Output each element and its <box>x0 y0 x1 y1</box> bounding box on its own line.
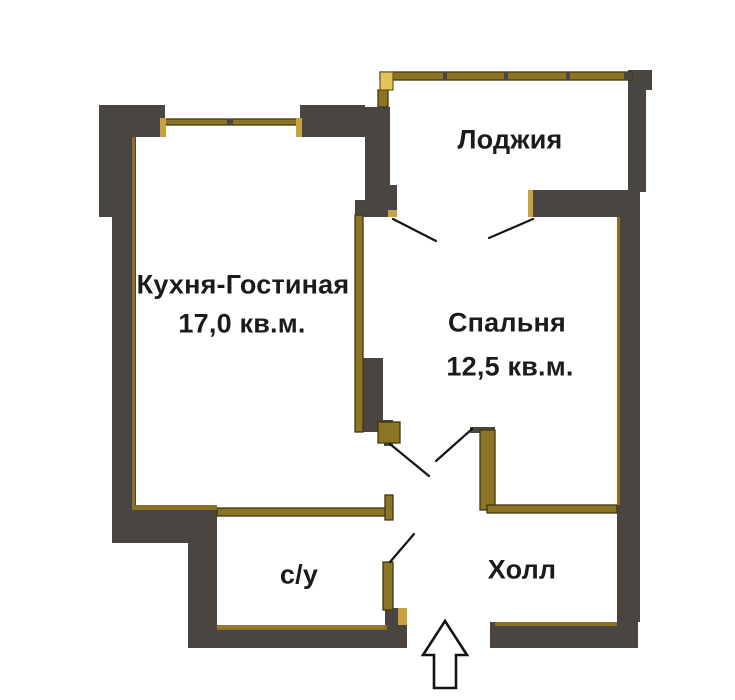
jamb-kitchen-window-left <box>160 118 166 137</box>
jamb-bathroom-step <box>398 608 407 625</box>
kitchen-window-tick <box>227 119 233 125</box>
floor-plan: Лоджия Кухня-Гостиная 17,0 кв.м. Спальня… <box>0 0 735 700</box>
loggia-left-window-strip <box>378 90 388 107</box>
bathroom-door-leaf <box>390 534 414 562</box>
trim-right-wall-inner <box>617 217 620 505</box>
wall-bathroom-bottom <box>192 628 407 648</box>
trim-bathroom-bottom-top <box>217 625 387 630</box>
balcony-door-leaf-left <box>393 219 436 241</box>
loggia-window-tick <box>624 72 632 80</box>
trim-kitchen-block-top <box>132 505 217 510</box>
wall-bathroom-top <box>217 508 387 516</box>
wall-kitchen-bottom-block <box>112 505 217 543</box>
jamb-kitchen-window-right <box>296 118 302 137</box>
loggia-window-tick <box>566 72 570 80</box>
balcony-door-leaf-right <box>489 219 533 238</box>
wall-partition-jamb <box>378 422 400 443</box>
wall-right-outer <box>617 192 640 622</box>
loggia-window-tick <box>443 72 447 80</box>
kitchen-door-leaf <box>390 444 429 476</box>
loggia-window-corner-block <box>380 72 393 90</box>
room-label-kitchen-living: Кухня-Гостиная <box>137 270 350 301</box>
room-area-kitchen-living: 17,0 кв.м. <box>178 309 305 340</box>
floor-plan-drawing <box>0 0 735 700</box>
loggia-window-tick <box>504 72 508 80</box>
room-label-bathroom: с/у <box>280 560 318 591</box>
trim-left-wall-inner <box>132 137 135 505</box>
wall-partition-block <box>362 358 383 425</box>
room-label-hall: Холл <box>488 555 557 586</box>
room-label-bedroom: Спальня <box>448 308 566 339</box>
wall-left-upper <box>99 105 136 217</box>
bedroom-door-leaf <box>436 429 472 461</box>
wall-kitchen-bedroom-partition <box>355 215 363 432</box>
jamb-balcony-door <box>388 210 397 217</box>
wall-top-right-block <box>300 105 365 137</box>
trim-hall-bottom-top <box>495 622 617 626</box>
wall-bedroom-door-side <box>480 430 495 510</box>
room-area-bedroom: 12,5 кв.м. <box>446 352 573 383</box>
room-label-loggia: Лоджия <box>458 125 563 156</box>
jamb-loggia-bottom <box>528 190 533 217</box>
wall-loggia-bottom <box>528 190 630 217</box>
entrance-arrow-icon <box>423 621 467 688</box>
wall-bathroom-top-jamb <box>385 495 393 520</box>
wall-bathroom-door-side <box>383 562 393 610</box>
wall-bedroom-bottom <box>487 505 617 513</box>
